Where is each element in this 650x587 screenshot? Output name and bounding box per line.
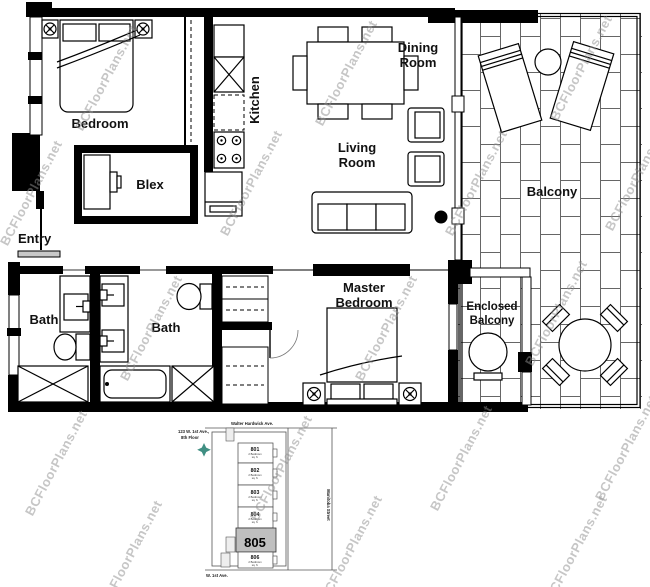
wall-enclosed-right-a: [522, 277, 531, 353]
shaft: [221, 553, 230, 567]
wall-master-east-a: [448, 276, 458, 304]
wall-closet-bottom: [212, 322, 272, 330]
shaft: [226, 428, 234, 441]
wall-mid-b: [85, 266, 140, 274]
lamp-icon: [404, 388, 417, 401]
enclosed-balcony-bench: [474, 373, 502, 380]
lamp-icon: [44, 23, 56, 35]
wall-master-east-b: [448, 350, 458, 404]
unit-caption: sq. ft.: [252, 476, 259, 480]
patio-table: [559, 319, 611, 371]
wall-enclosed-right-b: [522, 372, 531, 405]
kitchen-label: Kitchen: [247, 76, 262, 124]
wall-kitchen-column: [204, 17, 213, 172]
unit-balcony-notch: [273, 556, 277, 564]
unit-caption: sq. ft.: [252, 455, 259, 459]
dining-label-line2: Room: [400, 55, 437, 70]
unit-balcony-notch: [273, 449, 277, 457]
dining-label-line1: Dining: [398, 40, 438, 55]
balcony-label: Balcony: [527, 184, 578, 199]
floorplan-svg: Balcony: [0, 0, 650, 587]
window-mullion: [28, 52, 42, 60]
unit-cell-805-highlighted: 805: [236, 528, 276, 552]
entry: Entry: [18, 231, 52, 246]
entry-door: [18, 251, 60, 257]
street-right-label: Manitoba Street: [326, 489, 331, 521]
shaft: [226, 537, 235, 552]
desk-chair-back: [117, 176, 121, 188]
pillow: [63, 24, 96, 41]
kitchen-cabinet: [214, 25, 244, 57]
desk: [84, 155, 110, 209]
wall-mid-a: [16, 266, 63, 274]
shower: [18, 366, 88, 402]
armchair: [408, 152, 444, 186]
closet: [222, 347, 268, 404]
column-block: [452, 96, 464, 112]
dining-chair: [362, 104, 392, 119]
window-bedroom-west: [30, 17, 42, 135]
living-label-line1: Living: [338, 140, 376, 155]
structural-column-dot: [435, 211, 448, 224]
toilet: [177, 284, 212, 310]
balcony-side-table: [535, 49, 561, 75]
wall-top: [28, 8, 455, 17]
window-mullion: [7, 328, 21, 336]
unit-cell-806: 806 2 Bedroom sq. ft.: [238, 552, 277, 568]
sink: [100, 284, 124, 306]
wall-mid-c: [166, 266, 212, 274]
pillow: [331, 384, 360, 399]
enclosed-label-line2: Balcony: [470, 315, 515, 327]
wall-enclosed-top: [470, 268, 530, 277]
wall-balcony-header: [428, 10, 538, 23]
sofa: [312, 192, 412, 233]
bath-left-label: Bath: [30, 312, 59, 327]
toilet: [54, 334, 90, 360]
wall-mid-d: [212, 266, 273, 274]
closet: [222, 276, 268, 322]
dining-chair: [293, 56, 307, 90]
blex-label: Blex: [136, 177, 164, 192]
street-top-label: Walter Hardwick Ave.: [231, 421, 273, 426]
address-line1: 123 W. 1st Ave.,: [178, 429, 209, 434]
dining-chair: [318, 27, 348, 42]
desk-chair: [110, 172, 117, 192]
unit-number-805: 805: [244, 535, 266, 550]
floorplan-page: Balcony: [0, 0, 650, 587]
stove: [214, 132, 244, 168]
shower: [172, 366, 214, 402]
lamp-icon: [137, 23, 149, 35]
master-label-line2: Bedroom: [335, 295, 392, 310]
kitchen-sink: [214, 57, 244, 92]
enclosed-label-line1: Enclosed: [466, 301, 517, 313]
window-mullion: [28, 96, 42, 104]
lamp-icon: [308, 388, 321, 401]
street-bottom-label: W. 1st Ave.: [206, 573, 228, 578]
armchair: [408, 108, 444, 142]
enclosed-balcony-table: [469, 333, 507, 371]
unit-caption: sq. ft.: [252, 563, 259, 567]
sink: [64, 294, 90, 320]
window-master-east: [449, 304, 457, 350]
headboard: [327, 399, 397, 405]
address-line2: 8th Floor: [181, 435, 199, 440]
living-label-line2: Room: [339, 155, 376, 170]
pillow: [364, 384, 393, 399]
entry-label: Entry: [18, 231, 52, 246]
unit-cell-801: 801 2 Bedroom sq. ft.: [238, 443, 277, 463]
wall-top-left-block: [26, 2, 52, 17]
sink: [100, 330, 124, 352]
wall-between-baths: [90, 274, 100, 404]
wall-master-header: [313, 264, 410, 276]
unit-balcony-notch: [273, 513, 277, 521]
master-label-line1: Master: [343, 280, 385, 295]
